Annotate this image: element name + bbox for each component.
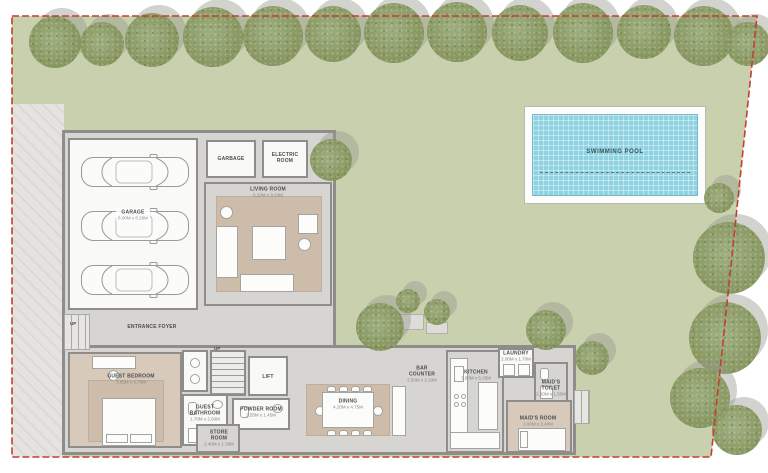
label-foyer: ENTRANCE FOYER — [127, 324, 176, 330]
label-living: LIVING ROOM 6.20M x 9.20M — [250, 186, 286, 197]
pool-lane-line — [540, 172, 690, 173]
label-guest-bathroom: GUEST BATHROOM 1.70M x 2.60M — [187, 404, 223, 421]
sofa-left — [216, 226, 238, 278]
burner-4 — [461, 402, 466, 407]
armchair — [298, 214, 318, 234]
label-lift: LIFT — [262, 374, 273, 380]
kitchen-counter-bottom — [450, 432, 500, 449]
room-kitchen — [446, 350, 504, 453]
pool-water: SWIMMING POOL — [532, 114, 698, 196]
dining-end-chair — [373, 406, 383, 416]
burner-1 — [454, 394, 459, 399]
maid-pillow — [520, 431, 528, 448]
label-guest-bedroom: GUEST BEDROOM 3.85M x 4.70M — [107, 373, 154, 384]
sofa-bottom — [240, 274, 294, 292]
coffee-table — [252, 226, 286, 260]
dryer — [518, 364, 530, 376]
side-table-1 — [220, 206, 233, 219]
label-kitchen: KITCHEN 3.80M x 5.35M — [461, 369, 491, 380]
label-store: STORE ROOM 2.40M x 1.30M — [201, 429, 237, 446]
desk — [92, 356, 136, 369]
pillow-1 — [106, 434, 128, 443]
staircase — [210, 350, 246, 396]
label-maids-room: MAID'S ROOM 3.00M x 2.40M — [520, 415, 556, 426]
label-bar: BAR COUNTER 2.50M x 2.20M — [404, 365, 440, 382]
label-maids-toilet: MAID'S TOILET 2.00M x 1.50M — [533, 379, 569, 396]
burner-2 — [461, 394, 466, 399]
label-garbage: GARBAGE — [218, 156, 245, 162]
dining-chair — [339, 430, 348, 436]
label-powder: POWDER ROOM 2.55M x 1.45M — [240, 406, 282, 417]
room-guest-bedroom — [68, 352, 182, 448]
car-3 — [82, 263, 189, 298]
label-garage: GARAGE 6.00M x 8.20M — [116, 208, 150, 221]
driveway-paving — [12, 104, 64, 457]
burner-3 — [454, 402, 459, 407]
label-up-foyer: UP — [70, 321, 76, 326]
dining-chair — [351, 430, 360, 436]
room-living — [204, 182, 332, 306]
label-electric: ELECTRIC ROOM — [267, 152, 303, 164]
swimming-pool: SWIMMING POOL — [524, 106, 706, 204]
garden-step-2 — [426, 322, 448, 334]
site-plan-canvas: SWIMMING POOL GARAGE 6.00M x 8.20M GARBA… — [0, 0, 768, 473]
washer — [503, 364, 515, 376]
entry-steps — [64, 314, 90, 350]
dining-chair — [363, 430, 372, 436]
dining-chair — [327, 430, 336, 436]
pillow-2 — [130, 434, 152, 443]
label-dining: DINING 4.20M x 4.75M — [333, 398, 363, 409]
room-garage — [68, 138, 198, 310]
pool-label: SWIMMING POOL — [586, 149, 643, 155]
car-1 — [82, 155, 189, 190]
tree — [712, 405, 762, 455]
console — [392, 386, 406, 436]
toilet-maid — [540, 368, 549, 380]
garden-step-1 — [396, 314, 424, 330]
cars-top-view — [72, 146, 196, 312]
side-entry-steps — [574, 390, 590, 424]
basin-1 — [190, 358, 200, 368]
vanity-strip — [182, 350, 208, 392]
label-laundry: LAUNDRY 2.00M x 1.70M — [501, 350, 531, 361]
fridge-cabinet — [478, 382, 498, 430]
basin-2 — [190, 374, 200, 384]
label-up-stairs: UP — [214, 346, 220, 351]
side-table-2 — [298, 238, 311, 251]
